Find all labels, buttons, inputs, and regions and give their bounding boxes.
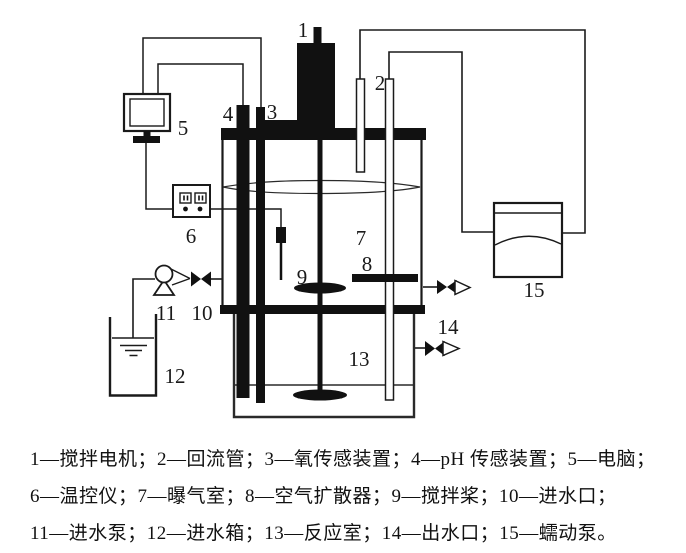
controller-display-right <box>195 193 206 203</box>
oxygen-probe <box>256 107 265 403</box>
caption-line-3: 11—进水泵；12—进水箱；13—反应室；14—出水口；15—蠕动泵。 <box>30 515 670 552</box>
outlet-valve-upper <box>437 280 470 295</box>
outlet-valve-upper-arrow <box>455 281 470 295</box>
computer-monitor <box>124 94 170 143</box>
motor-body <box>297 43 335 129</box>
label-feed-tank: 12 <box>165 364 186 388</box>
label-peristaltic-pump: 15 <box>524 278 545 302</box>
temperature-sensor <box>276 227 286 280</box>
stirring-motor <box>297 27 335 129</box>
temperature-controller <box>173 185 210 217</box>
motor-shaft-stub <box>314 27 322 44</box>
label-diffuser: 8 <box>362 252 373 276</box>
return-tube-short <box>357 79 365 172</box>
stirrer-paddle-lower <box>293 390 347 401</box>
label-return-pipe: 2 <box>375 71 386 95</box>
return-hose-inner <box>389 52 494 232</box>
figure-page: 1 2 3 4 5 6 7 8 9 10 11 12 13 14 15 1—搅拌… <box>0 0 686 553</box>
monitor-screen <box>130 99 164 126</box>
component-number-labels: 1 2 3 4 5 6 7 8 9 10 11 12 13 14 15 <box>156 18 545 388</box>
outlet-valve-lower-bowtie <box>425 341 445 356</box>
apparatus-diagram: 1 2 3 4 5 6 7 8 9 10 11 12 13 14 15 <box>0 0 686 435</box>
monitor-base <box>133 136 160 143</box>
label-inlet-pump: 11 <box>156 301 176 325</box>
label-ph-probe: 4 <box>223 102 234 126</box>
reactor-lid <box>221 128 426 140</box>
label-aeration-chamber: 7 <box>356 226 367 250</box>
figure-caption: 1—搅拌电机；2—回流管；3—氧传感装置；4—pH 传感装置；5—电脑； 6—温… <box>30 441 670 552</box>
stirrer-shaft <box>318 128 323 396</box>
label-outlet: 14 <box>438 315 460 339</box>
inlet-valve-bowtie <box>191 272 211 287</box>
label-paddle: 9 <box>297 265 308 289</box>
ph-probe <box>237 105 250 398</box>
controller-display-left <box>180 193 191 203</box>
caption-line-1: 1—搅拌电机；2—回流管；3—氧传感装置；4—pH 传感装置；5—电脑； <box>30 441 670 478</box>
outlet-valve-lower-arrow <box>443 342 459 356</box>
label-reaction-chamber: 13 <box>349 347 370 371</box>
outlet-valve-lower <box>425 341 459 356</box>
inlet-pump-head <box>156 266 173 283</box>
water-surface-symbol <box>120 346 147 356</box>
inlet-pipe <box>133 279 155 338</box>
return-tube-long <box>386 79 394 400</box>
controller-terminal-right <box>198 207 203 212</box>
inlet-valve <box>191 272 211 287</box>
label-inlet: 10 <box>192 301 213 325</box>
peristaltic-pump <box>494 203 562 277</box>
label-computer: 5 <box>178 116 189 140</box>
label-motor: 1 <box>298 18 309 42</box>
outlet-valve-upper-bowtie <box>437 280 457 294</box>
label-oxygen-probe: 3 <box>267 100 278 124</box>
label-controller: 6 <box>186 224 197 248</box>
inlet-pump-nozzle <box>171 269 190 285</box>
controller-terminal-left <box>183 207 188 212</box>
inlet-pump <box>154 266 190 296</box>
temperature-sensor-body <box>276 227 286 243</box>
caption-line-2: 6—温控仪；7—曝气室；8—空气扩散器；9—搅拌桨；10—进水口； <box>30 478 670 515</box>
